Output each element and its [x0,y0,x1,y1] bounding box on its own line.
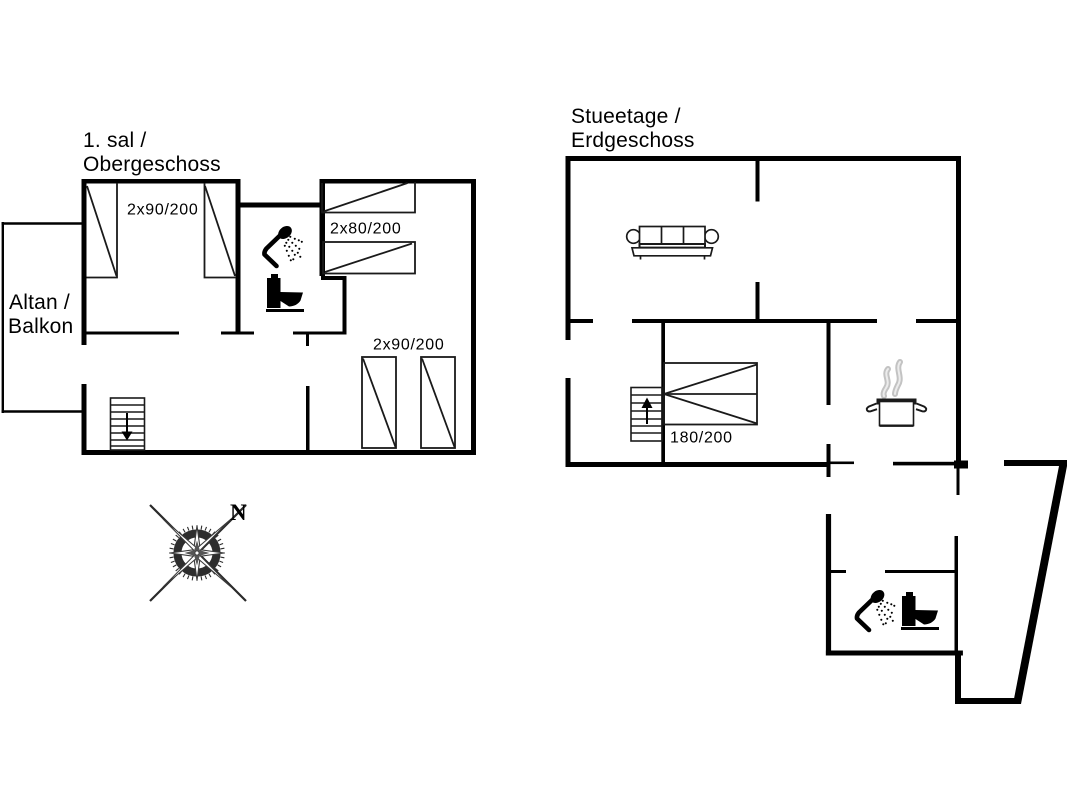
svg-text:Balkon: Balkon [8,315,73,338]
svg-text:Obergeschoss: Obergeschoss [83,153,221,176]
svg-text:Erdgeschoss: Erdgeschoss [571,129,695,152]
svg-text:2x80/200: 2x80/200 [330,221,401,238]
svg-text:1. sal /: 1. sal / [83,129,146,152]
svg-text:Stueetage /: Stueetage / [571,105,681,128]
svg-text:N: N [230,500,247,525]
svg-text:180/200: 180/200 [670,430,733,447]
svg-text:2x90/200: 2x90/200 [373,337,444,354]
svg-text:Altan /: Altan / [9,291,70,314]
svg-text:2x90/200: 2x90/200 [127,202,198,219]
